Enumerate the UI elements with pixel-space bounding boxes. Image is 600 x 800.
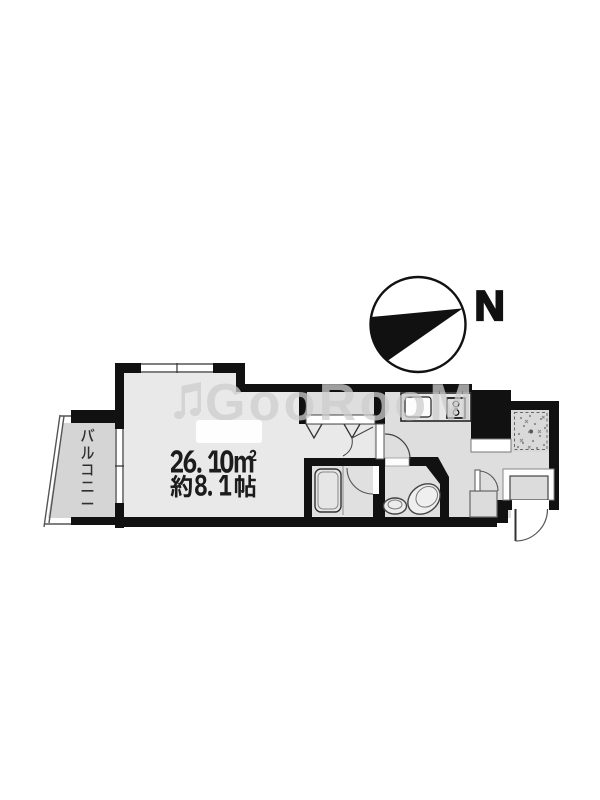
svg-text:N: N — [475, 282, 505, 329]
